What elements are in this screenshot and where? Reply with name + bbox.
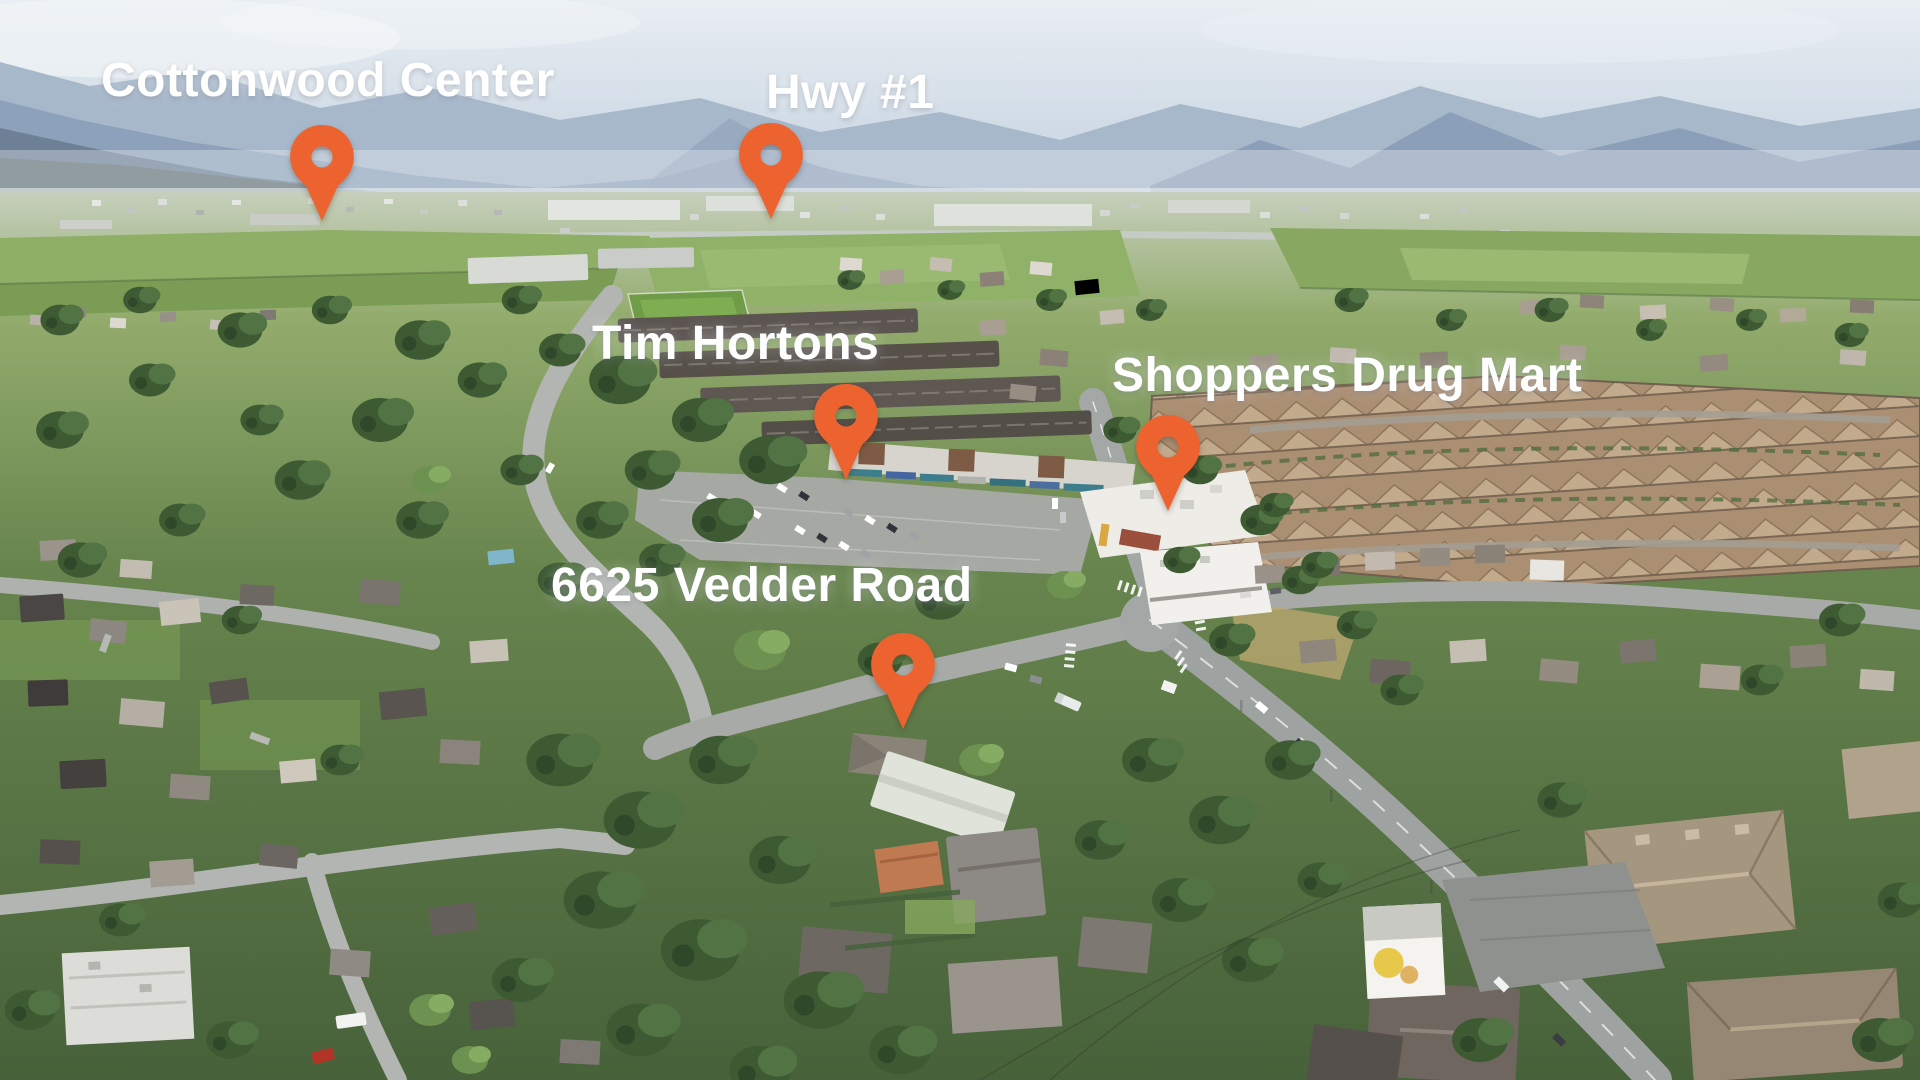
townhouse-complex	[1148, 376, 1920, 588]
map-label-cottonwood-center: Cottonwood Center	[101, 53, 555, 108]
map-pin-shape	[1136, 415, 1200, 511]
map-pin-shape	[871, 633, 935, 729]
map-pin-icon-hwy-1	[736, 122, 806, 220]
mural-building	[1363, 903, 1446, 999]
map-label-6625-vedder-road: 6625 Vedder Road	[551, 558, 973, 613]
map-pin-icon-cottonwood-center	[287, 124, 357, 222]
map-pin-shape	[739, 123, 803, 219]
map-pin-icon-tim-hortons	[811, 383, 881, 481]
map-pin-shape	[290, 125, 354, 221]
map-label-hwy-1: Hwy #1	[766, 65, 934, 120]
map-pin-icon-6625-vedder-road	[868, 632, 938, 730]
map-pin-icon-shoppers-drug-mart	[1133, 414, 1203, 512]
map-pin-shape	[814, 384, 878, 480]
map-label-shoppers-drug-mart: Shoppers Drug Mart	[1112, 348, 1582, 403]
annotated-aerial-photo: Cottonwood Center Hwy #1 Tim Hortons Sho…	[0, 0, 1920, 1080]
map-label-tim-hortons: Tim Hortons	[592, 316, 879, 371]
